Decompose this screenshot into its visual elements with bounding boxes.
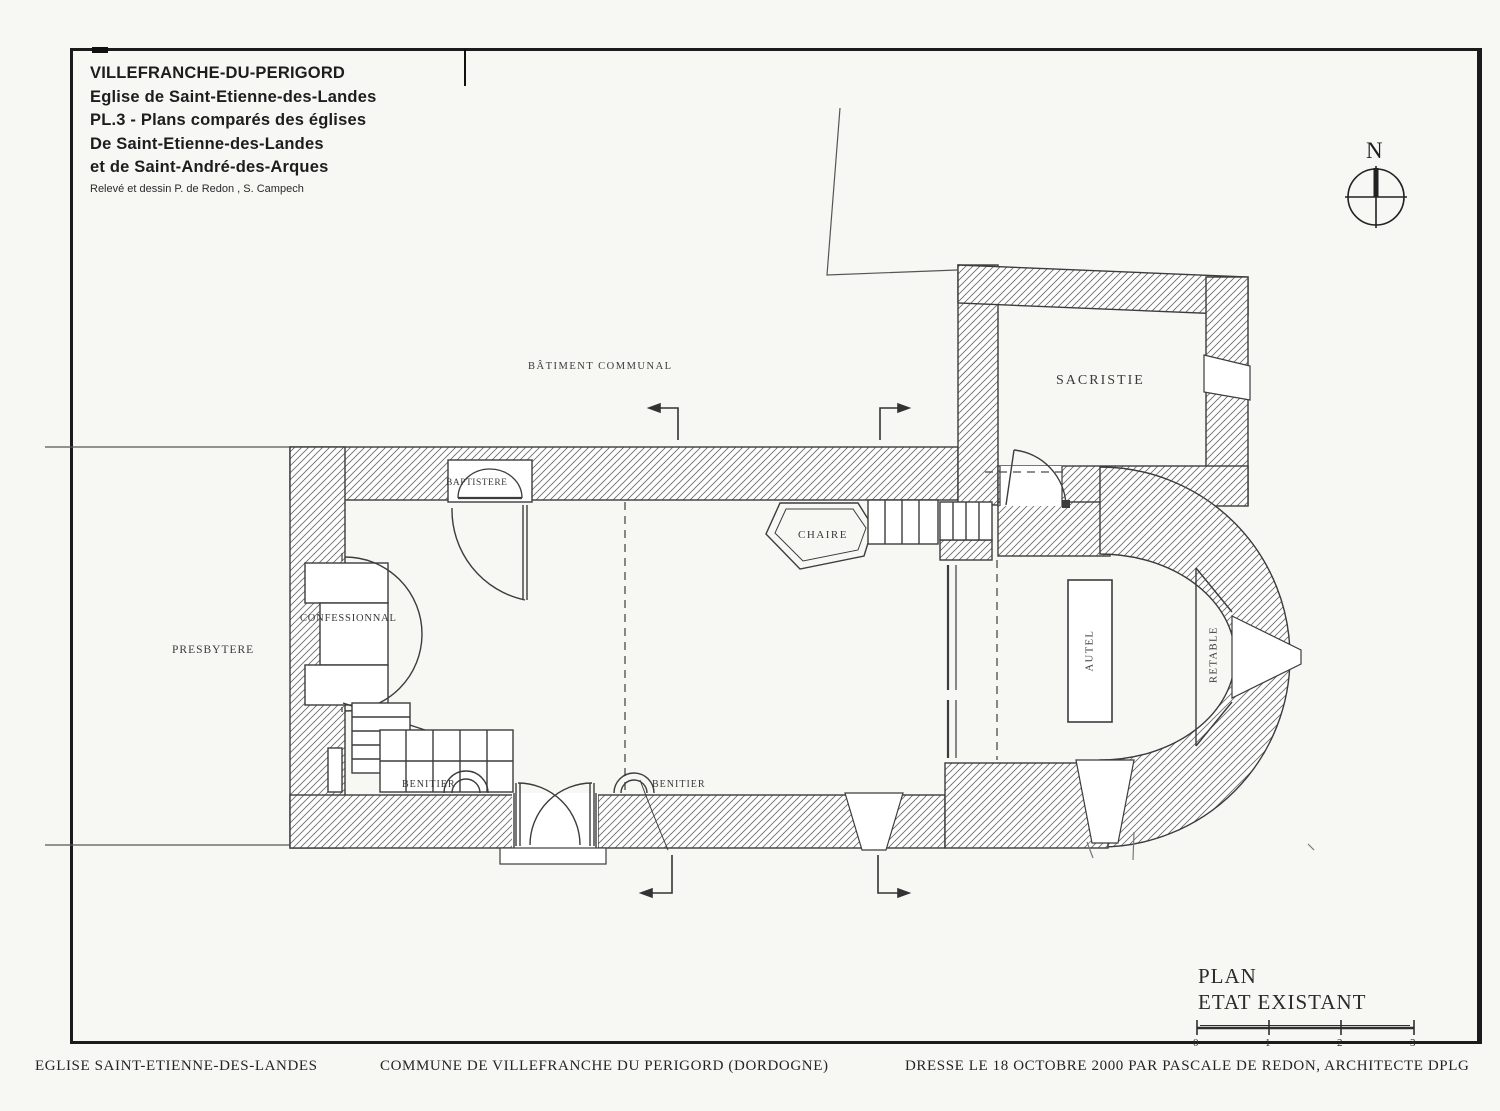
label-retable: RETABLE (1209, 620, 1220, 690)
north-arrow-icon (1345, 166, 1407, 228)
title-line-5: et de Saint-André-des-Arques (90, 156, 376, 180)
title-block: VILLEFRANCHE-DU-PERIGORD Eglise de Saint… (90, 62, 376, 195)
scale-tick-2: 2 (1337, 1037, 1343, 1049)
title-line-1: VILLEFRANCHE-DU-PERIGORD (90, 62, 376, 86)
label-baptistere: BAPTISTERE (446, 478, 507, 488)
title-line-4: De Saint-Etienne-des-Landes (90, 133, 376, 157)
label-autel: AUTEL (1085, 616, 1096, 686)
title-line-3: PL.3 - Plans comparés des églises (90, 109, 376, 133)
legend-title-line-1: PLAN (1198, 963, 1366, 989)
footer-right: DRESSE LE 18 OCTOBRE 2000 PAR PASCALE DE… (905, 1058, 1469, 1075)
label-presbytere: PRESBYTERE (172, 644, 254, 656)
scale-bar (1197, 1020, 1414, 1035)
legend-title: PLAN ETAT EXISTANT (1198, 963, 1366, 1015)
footer-left: EGLISE SAINT-ETIENNE-DES-LANDES (35, 1058, 318, 1075)
label-benitier-est: BENITIER (652, 779, 706, 790)
scale-tick-0: 0 (1193, 1037, 1199, 1049)
label-benitier-ouest: BENITIER (402, 779, 456, 790)
label-batiment-communal: BÂTIMENT COMMUNAL (528, 361, 673, 372)
label-confessionnal: CONFESSIONNAL (300, 613, 397, 624)
legend-title-line-2: ETAT EXISTANT (1198, 989, 1366, 1015)
title-line-2: Eglise de Saint-Etienne-des-Landes (90, 86, 376, 110)
scale-tick-3: 3 (1410, 1037, 1416, 1049)
footer-center: COMMUNE DE VILLEFRANCHE DU PERIGORD (DOR… (380, 1058, 829, 1075)
title-credit: Relevé et dessin P. de Redon , S. Campec… (90, 183, 376, 195)
label-chaire: CHAIRE (798, 529, 848, 541)
north-label: N (1366, 138, 1383, 164)
label-sacristie: SACRISTIE (1056, 373, 1145, 389)
scale-tick-1: 1 (1265, 1037, 1271, 1049)
